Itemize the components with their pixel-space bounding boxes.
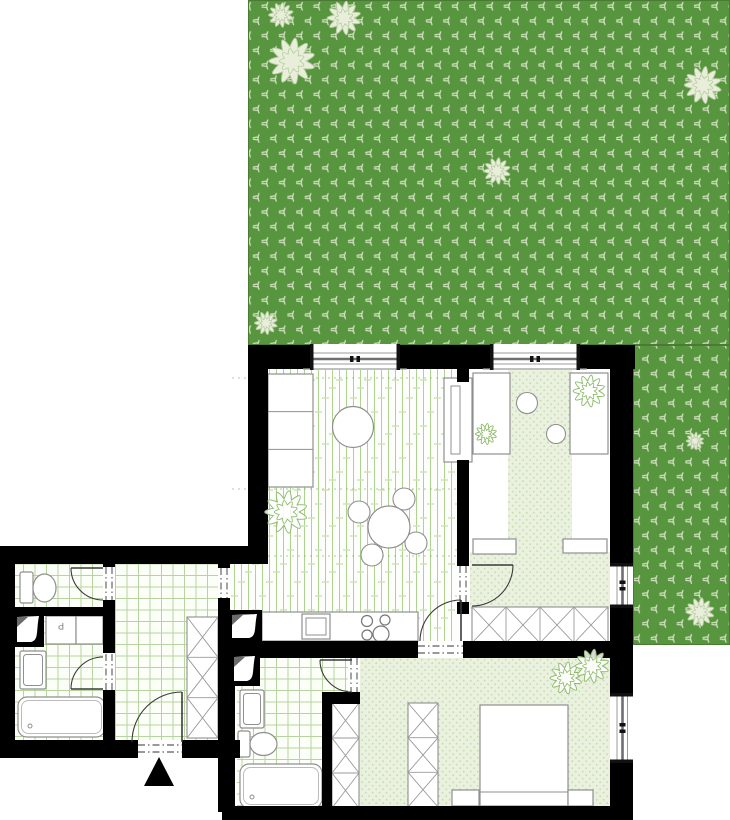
window xyxy=(610,563,633,608)
shaft-icon xyxy=(228,610,262,643)
dining-chair-icon xyxy=(348,501,370,523)
nightstand-icon xyxy=(568,790,593,806)
wall xyxy=(248,345,268,564)
toilet-tank xyxy=(20,572,33,603)
door-opening xyxy=(138,741,182,756)
sink-basin xyxy=(24,655,43,686)
window-jamb xyxy=(490,344,494,370)
door-opening xyxy=(457,566,469,602)
toilet-icon xyxy=(250,733,277,756)
door-threshold xyxy=(418,642,463,657)
shaft-icon xyxy=(230,652,260,686)
door-opening xyxy=(103,654,115,690)
bedside-lamp-icon xyxy=(547,425,566,444)
nightstand-icon xyxy=(452,790,479,806)
window-glass xyxy=(310,344,400,370)
kitchen-counter xyxy=(262,612,418,641)
window-jamb xyxy=(577,344,581,370)
sink-basin xyxy=(244,694,261,725)
wall xyxy=(103,564,115,567)
wall xyxy=(322,692,332,808)
window-jamb xyxy=(610,760,633,764)
window xyxy=(303,344,407,370)
grass-pattern xyxy=(633,345,730,645)
window-handle-icon xyxy=(620,581,626,585)
floor-carpet-dots xyxy=(508,368,572,554)
door-opening xyxy=(418,642,463,657)
window-jamb xyxy=(397,344,401,370)
wardrobe-icon xyxy=(332,703,359,808)
shaft-icon xyxy=(13,612,44,647)
floor-plan-svg: P xyxy=(0,0,730,820)
wall xyxy=(0,740,138,758)
wall xyxy=(457,460,469,566)
wall xyxy=(0,546,15,758)
bathtub-inner xyxy=(244,768,319,805)
wall xyxy=(610,345,633,563)
wall xyxy=(463,641,633,658)
door-threshold xyxy=(457,566,469,602)
door-threshold xyxy=(138,741,182,756)
door-opening xyxy=(218,568,230,598)
wall xyxy=(218,614,235,812)
floor-plan-image: P xyxy=(0,0,730,820)
bench-icon xyxy=(563,539,607,553)
entrance-marker-icon xyxy=(144,757,174,786)
bench-icon xyxy=(473,539,516,554)
floor-carpet-dots xyxy=(470,552,610,609)
window-handle-icon xyxy=(620,730,626,734)
window-jamb xyxy=(310,344,314,370)
bedside-lamp-icon xyxy=(517,393,538,414)
door-threshold xyxy=(348,658,360,692)
window xyxy=(610,693,633,763)
washing-machine-label: P xyxy=(58,621,64,631)
door-opening xyxy=(348,658,360,692)
toilet-icon xyxy=(33,574,56,602)
window-jamb xyxy=(610,605,633,609)
window-handle-icon xyxy=(620,587,626,591)
wall xyxy=(400,345,490,369)
window-jamb xyxy=(610,693,633,697)
window-handle-icon xyxy=(357,356,361,362)
wall xyxy=(222,806,633,820)
coffee-table-icon xyxy=(333,407,374,448)
wall xyxy=(103,690,115,740)
wall xyxy=(218,564,230,568)
sofa-icon xyxy=(268,374,313,487)
window-glass xyxy=(490,344,580,370)
wall xyxy=(0,546,268,564)
annotations xyxy=(144,757,174,786)
wall xyxy=(457,368,469,382)
door-threshold xyxy=(218,568,230,598)
appliance-icon xyxy=(76,616,103,644)
wall xyxy=(457,602,469,614)
kitchen-sink-basin xyxy=(306,618,326,635)
door-opening xyxy=(103,567,115,600)
wardrobe-icon xyxy=(408,703,438,807)
cabinet-inner xyxy=(451,386,460,454)
window-handle-icon xyxy=(350,356,354,362)
wardrobe-icon xyxy=(187,617,218,738)
double-bed-icon xyxy=(480,705,568,806)
dining-chair-icon xyxy=(361,544,383,566)
window-handle-icon xyxy=(537,356,541,362)
wardrobe-icon xyxy=(472,607,608,643)
wall xyxy=(610,763,633,808)
door-threshold xyxy=(103,654,115,690)
bathtub-inner xyxy=(22,701,102,734)
dining-table-icon xyxy=(368,506,410,548)
window-handle-icon xyxy=(620,723,626,727)
window xyxy=(483,344,587,370)
window-handle-icon xyxy=(530,356,534,362)
door-threshold xyxy=(103,567,115,600)
window-jamb xyxy=(610,563,633,567)
